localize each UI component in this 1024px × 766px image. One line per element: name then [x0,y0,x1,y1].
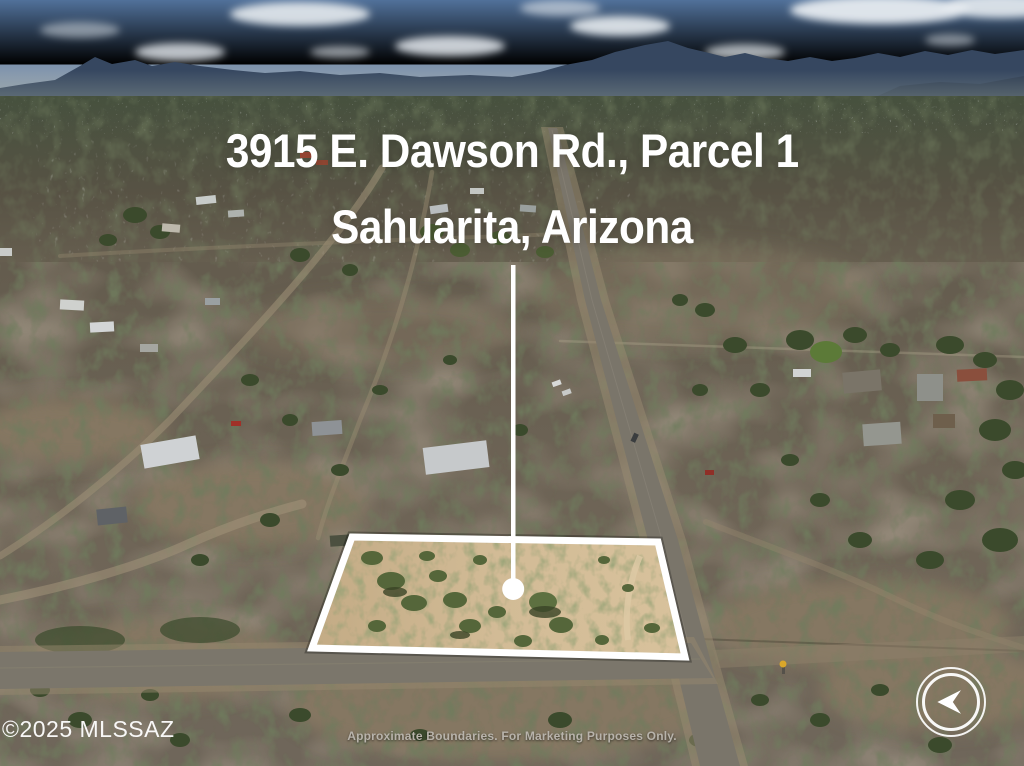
parcel-pointer-line [511,265,516,581]
distant-town-speckles [0,98,1024,134]
previous-photo-button[interactable] [916,667,986,737]
listing-photo-slide: 3915 E. Dawson Rd., Parcel 1 Sahuarita, … [0,0,1024,766]
button-inner-ring [922,673,980,731]
aerial-photo [0,0,1024,766]
parcel-marker-dot [502,578,524,600]
arrow-left-icon [931,682,971,722]
